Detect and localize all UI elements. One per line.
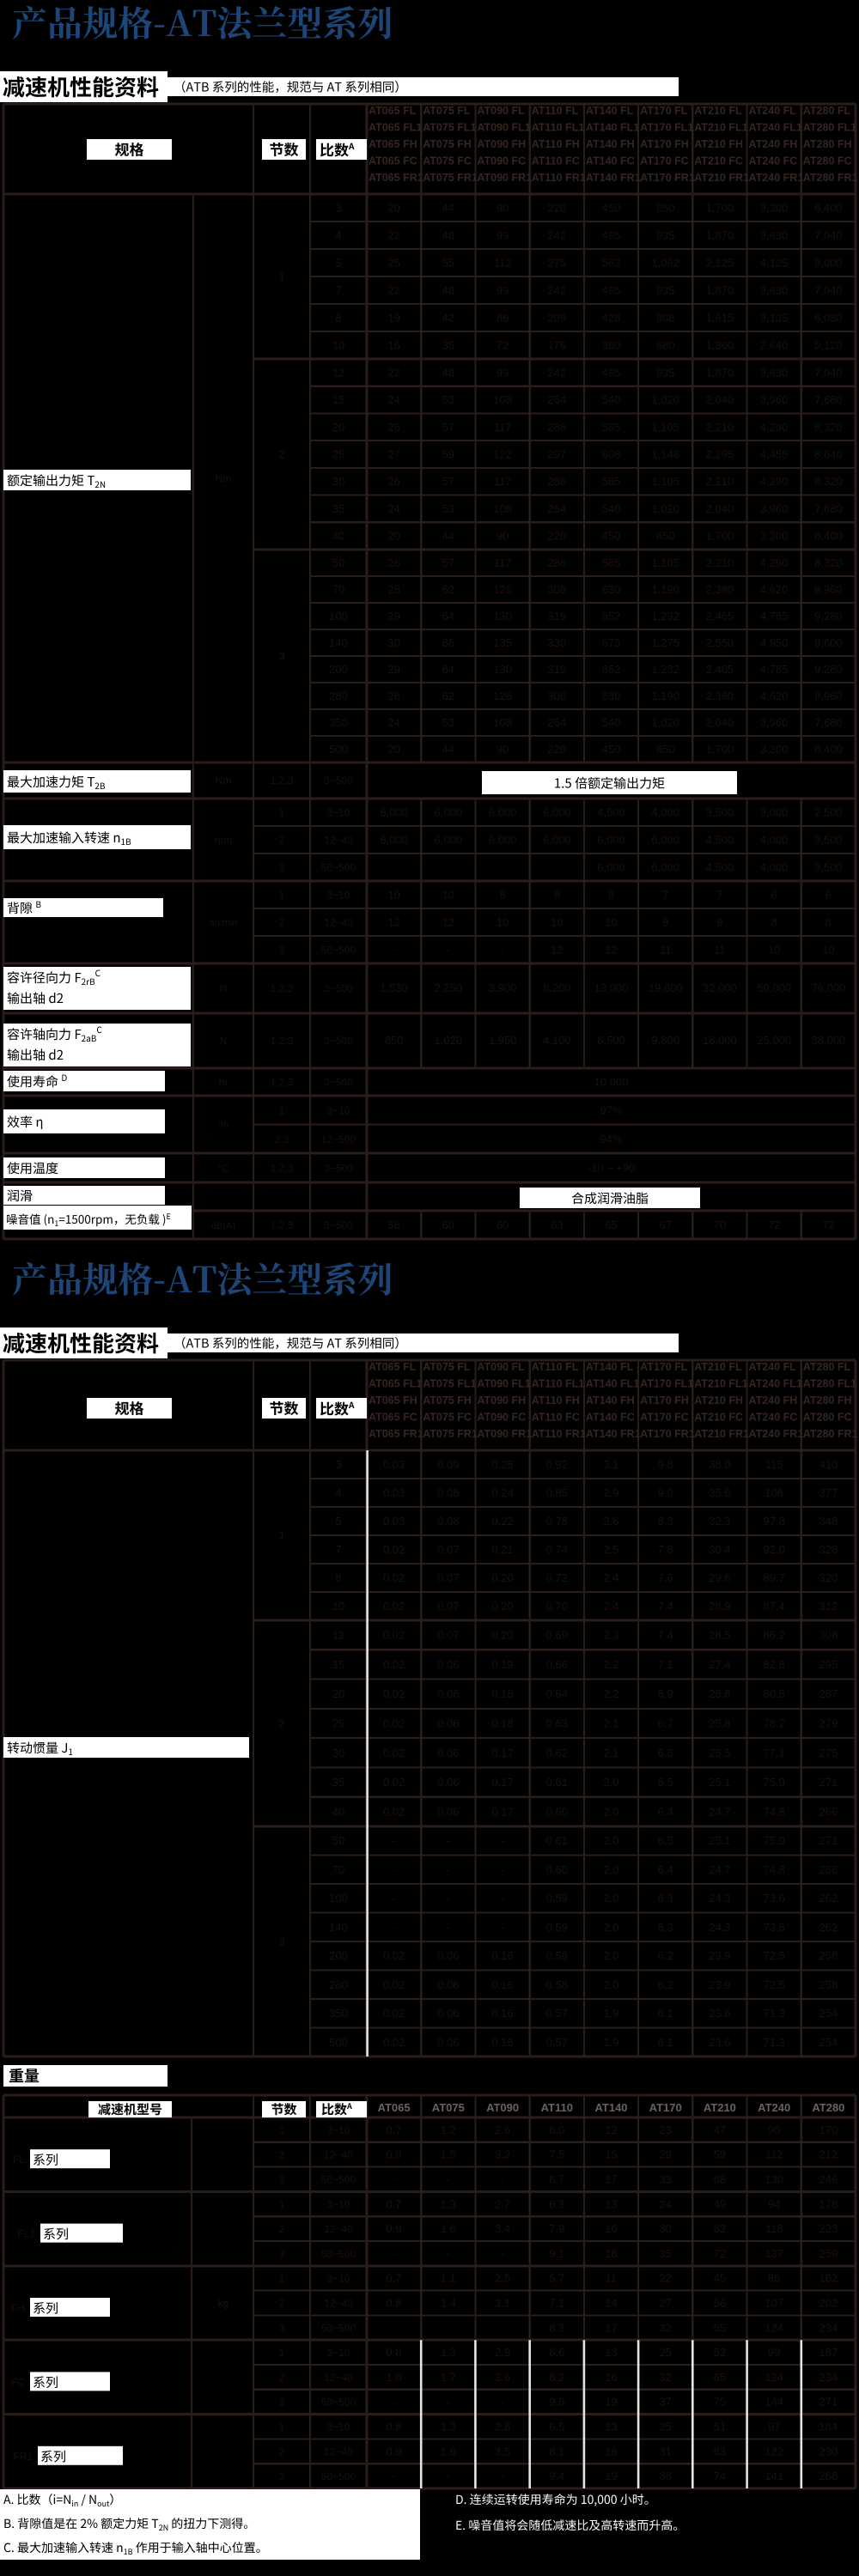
svg-text:AT075 FC: AT075 FC [423, 1412, 472, 1424]
svg-text:0.8: 0.8 [387, 2421, 402, 2433]
svg-text:0.59: 0.59 [546, 1892, 568, 1905]
svg-text:AT280 FL: AT280 FL [803, 105, 851, 117]
svg-text:170: 170 [819, 2123, 838, 2136]
svg-text:FL: FL [13, 2154, 25, 2166]
svg-text:74: 74 [714, 2470, 726, 2482]
svg-text:16: 16 [605, 2371, 617, 2384]
svg-text:9: 9 [716, 916, 722, 929]
svg-text:°C: °C [217, 1163, 229, 1175]
svg-text:1,615: 1,615 [706, 312, 734, 325]
svg-text:262: 262 [819, 1921, 838, 1934]
svg-text:AT090 FR1: AT090 FR1 [477, 1428, 532, 1440]
svg-text:1.1: 1.1 [441, 2272, 456, 2285]
svg-text:3~10: 3~10 [326, 2198, 350, 2210]
svg-text:24.3: 24.3 [709, 1921, 730, 1934]
svg-text:AT090 FC: AT090 FC [477, 155, 526, 167]
svg-text:275: 275 [819, 1747, 838, 1759]
svg-text:72.5: 72.5 [764, 1949, 785, 1962]
svg-text:7.6: 7.6 [658, 1571, 673, 1584]
svg-text:99: 99 [497, 229, 509, 242]
svg-text:27.4: 27.4 [709, 1658, 730, 1671]
svg-text:3.6: 3.6 [495, 2371, 510, 2384]
svg-text:0.03: 0.03 [383, 1486, 405, 1499]
svg-text:0.69: 0.69 [546, 1629, 568, 1642]
svg-text:6.4: 6.4 [658, 1805, 673, 1818]
svg-text:2.0: 2.0 [603, 1805, 618, 1818]
svg-text:0.70: 0.70 [546, 1600, 568, 1613]
svg-text:4,620: 4,620 [760, 690, 789, 702]
svg-text:1: 1 [279, 807, 285, 819]
svg-text:50~500: 50~500 [321, 2174, 356, 2186]
svg-text:3,300: 3,300 [760, 202, 789, 215]
svg-text:2,465: 2,465 [706, 663, 734, 676]
svg-text:0.08: 0.08 [437, 1486, 459, 1499]
svg-text:AT210 FH: AT210 FH [694, 1394, 743, 1406]
svg-text:1.6: 1.6 [441, 2222, 456, 2235]
svg-text:AT065 FC: AT065 FC [369, 155, 417, 167]
svg-text:0.03: 0.03 [383, 1458, 405, 1471]
svg-text:1.9: 1.9 [603, 2036, 618, 2049]
svg-text:1: 1 [279, 2273, 285, 2285]
svg-text:108: 108 [493, 502, 512, 515]
svg-text:212: 212 [819, 2148, 838, 2161]
svg-text:AT210 FC: AT210 FC [694, 155, 743, 167]
svg-text:AT210 FR1: AT210 FR1 [694, 172, 749, 184]
svg-text:6.5: 6.5 [658, 1776, 673, 1789]
svg-text:1,360: 1,360 [706, 339, 734, 352]
svg-text:2,040: 2,040 [706, 716, 734, 729]
svg-text:585: 585 [602, 475, 621, 488]
svg-text:2,380: 2,380 [706, 583, 734, 596]
svg-text:6.3: 6.3 [658, 1892, 673, 1905]
svg-text:62: 62 [714, 2222, 726, 2235]
svg-text:AT240 FH: AT240 FH [749, 1394, 798, 1406]
svg-text:162: 162 [819, 2272, 838, 2285]
svg-text:1,2,3: 1,2,3 [271, 1077, 294, 1089]
svg-text:12: 12 [332, 366, 344, 379]
svg-text:AT240 FL: AT240 FL [749, 105, 797, 117]
svg-text:280: 280 [329, 690, 348, 702]
svg-text:6.7: 6.7 [658, 1717, 673, 1730]
svg-text:28.9: 28.9 [709, 1600, 730, 1613]
svg-text:AT065 FC: AT065 FC [369, 1412, 417, 1424]
svg-text:4,455: 4,455 [760, 448, 789, 461]
svg-text:1.3: 1.3 [441, 2346, 456, 2359]
svg-text:35: 35 [442, 339, 454, 352]
svg-text:80.5: 80.5 [764, 1687, 785, 1700]
svg-text:0.02: 0.02 [383, 1629, 405, 1642]
svg-text:1,870: 1,870 [706, 229, 734, 242]
svg-text:57: 57 [442, 475, 454, 488]
svg-text:30: 30 [387, 636, 399, 649]
svg-text:234: 234 [819, 2371, 838, 2384]
svg-text:1,2,3: 1,2,3 [271, 1035, 294, 1047]
svg-text:500: 500 [329, 2036, 348, 2049]
svg-text:9,280: 9,280 [814, 663, 843, 676]
svg-text:0.02: 0.02 [383, 2007, 405, 2020]
svg-text:2,550: 2,550 [706, 636, 734, 649]
svg-text:72: 72 [714, 2247, 726, 2260]
svg-text:286: 286 [547, 556, 566, 569]
svg-text:0.61: 0.61 [546, 1834, 568, 1847]
svg-text:-: - [501, 1834, 504, 1847]
svg-text:184: 184 [819, 2421, 838, 2433]
svg-text:-: - [501, 1921, 504, 1934]
svg-text:1.9: 1.9 [603, 2007, 618, 2020]
svg-text:94: 94 [768, 2197, 780, 2210]
svg-text:3,960: 3,960 [760, 393, 789, 406]
svg-text:1,700: 1,700 [706, 202, 734, 215]
svg-text:7: 7 [716, 889, 722, 902]
svg-text:0.07: 0.07 [437, 1600, 459, 1613]
svg-text:AT110 FL1: AT110 FL1 [532, 1378, 585, 1390]
svg-text:360: 360 [602, 339, 621, 352]
svg-text:0.06: 0.06 [437, 1978, 459, 1991]
svg-text:2.7: 2.7 [495, 2197, 510, 2210]
svg-text:3~10: 3~10 [326, 1105, 350, 1117]
svg-text:7,040: 7,040 [814, 229, 843, 242]
svg-text:0.08: 0.08 [437, 1515, 459, 1528]
svg-text:92.0: 92.0 [764, 1543, 785, 1556]
svg-text:4,290: 4,290 [760, 475, 789, 488]
svg-text:650: 650 [385, 1034, 404, 1047]
svg-text:6,000: 6,000 [435, 806, 463, 819]
svg-text:AT240 FL1: AT240 FL1 [749, 122, 802, 134]
svg-text:9,600: 9,600 [814, 636, 843, 649]
svg-text:9,800: 9,800 [651, 1034, 679, 1047]
svg-text:0.02: 0.02 [383, 1978, 405, 1991]
svg-text:850: 850 [656, 202, 675, 215]
svg-text:9.4: 9.4 [549, 2470, 564, 2482]
svg-text:2.8: 2.8 [495, 2421, 510, 2433]
svg-text:23.9: 23.9 [709, 1978, 730, 1991]
svg-text:4,290: 4,290 [760, 556, 789, 569]
svg-text:44: 44 [442, 202, 454, 215]
svg-text:0.17: 0.17 [491, 1776, 513, 1789]
svg-text:348: 348 [819, 1515, 838, 1528]
svg-text:2,465: 2,465 [706, 610, 734, 623]
svg-text:2: 2 [279, 2149, 285, 2161]
svg-text:AT065 FL1: AT065 FL1 [369, 122, 422, 134]
svg-text:AT065: AT065 [378, 2101, 411, 2114]
svg-text:13: 13 [605, 2346, 617, 2359]
svg-text:2.1: 2.1 [603, 1717, 618, 1730]
svg-text:6: 6 [771, 889, 777, 902]
svg-text:6.6: 6.6 [549, 2346, 564, 2359]
svg-text:59: 59 [442, 448, 454, 461]
svg-text:90: 90 [497, 743, 509, 756]
svg-text:AT210 FC: AT210 FC [694, 1412, 743, 1424]
svg-text:8: 8 [335, 312, 341, 325]
svg-text:68: 68 [714, 2173, 726, 2186]
svg-text:2: 2 [279, 835, 285, 847]
svg-text:7,680: 7,680 [814, 502, 843, 515]
svg-text:Nm: Nm [216, 473, 232, 485]
svg-text:24.3: 24.3 [709, 1892, 730, 1905]
svg-text:2,125: 2,125 [706, 257, 734, 270]
svg-text:12~40: 12~40 [324, 917, 353, 929]
svg-text:29: 29 [387, 663, 399, 676]
svg-text:122: 122 [493, 448, 512, 461]
svg-text:2.0: 2.0 [603, 1921, 618, 1934]
svg-text:0.59: 0.59 [546, 1921, 568, 1934]
svg-text:5.7: 5.7 [549, 2272, 564, 2285]
svg-text:6.6: 6.6 [658, 1747, 673, 1759]
svg-text:12: 12 [605, 944, 617, 957]
svg-text:AT210: AT210 [704, 2101, 736, 2114]
svg-text:AT240: AT240 [758, 2101, 790, 2114]
svg-text:26: 26 [387, 475, 399, 488]
svg-text:137: 137 [765, 2247, 783, 2260]
svg-text:57: 57 [442, 421, 454, 434]
svg-text:AT210 FR1: AT210 FR1 [694, 1428, 749, 1440]
svg-text:45: 45 [714, 2272, 726, 2285]
svg-text:1,870: 1,870 [706, 284, 734, 297]
svg-text:AT280 FL1: AT280 FL1 [803, 1378, 856, 1390]
svg-text:23.9: 23.9 [709, 1949, 730, 1962]
svg-text:202: 202 [819, 2297, 838, 2310]
svg-text:-: - [392, 2173, 395, 2186]
svg-text:1: 1 [279, 2347, 285, 2359]
svg-text:-: - [447, 1921, 450, 1934]
svg-text:246: 246 [819, 2173, 838, 2186]
svg-text:3,300: 3,300 [760, 530, 789, 543]
svg-text:24.7: 24.7 [709, 1863, 730, 1876]
svg-text:1: 1 [279, 2421, 285, 2433]
svg-text:74.8: 74.8 [764, 1805, 785, 1818]
svg-text:97%: 97% [600, 1104, 622, 1117]
svg-text:50~500: 50~500 [321, 2322, 356, 2334]
svg-text:-: - [392, 1834, 395, 1847]
svg-text:AT075 FH: AT075 FH [423, 1394, 472, 1406]
svg-text:262: 262 [819, 1892, 838, 1905]
svg-text:8,200: 8,200 [543, 981, 571, 994]
svg-text:279: 279 [819, 1717, 838, 1730]
svg-text:35.0: 35.0 [709, 1486, 730, 1499]
svg-text:AT170 FH: AT170 FH [640, 138, 689, 150]
svg-text:4,500: 4,500 [706, 861, 734, 874]
svg-text:47: 47 [714, 2123, 726, 2136]
svg-text:0.20: 0.20 [491, 1571, 513, 1584]
svg-text:-: - [501, 1863, 504, 1876]
svg-text:6.3: 6.3 [549, 2197, 564, 2210]
svg-text:2.0: 2.0 [603, 1776, 618, 1789]
svg-text:9.0: 9.0 [658, 1486, 673, 1499]
svg-text:26: 26 [387, 421, 399, 434]
svg-text:AT280 FR1: AT280 FR1 [803, 172, 858, 184]
svg-text:99: 99 [497, 284, 509, 297]
svg-text:4,290: 4,290 [760, 421, 789, 434]
svg-text:0.16: 0.16 [491, 2036, 513, 2049]
svg-text:6.1: 6.1 [658, 2036, 673, 2049]
svg-text:25.8: 25.8 [709, 1717, 730, 1730]
svg-text:48: 48 [442, 229, 454, 242]
svg-text:271: 271 [819, 1834, 838, 1847]
svg-text:3,630: 3,630 [760, 366, 789, 379]
svg-text:0.06: 0.06 [437, 1687, 459, 1700]
svg-text:2,040: 2,040 [706, 393, 734, 406]
svg-text:308: 308 [547, 583, 566, 596]
svg-text:AT240 FR1: AT240 FR1 [749, 172, 804, 184]
svg-text:178: 178 [819, 2197, 838, 2210]
svg-text:1: 1 [278, 270, 284, 283]
svg-text:AT240 FL1: AT240 FL1 [749, 1378, 802, 1390]
svg-text:3,960: 3,960 [760, 502, 789, 515]
svg-text:0.62: 0.62 [546, 1747, 568, 1759]
svg-text:850: 850 [656, 530, 675, 543]
svg-text:1,275: 1,275 [651, 636, 679, 649]
svg-text:12~40: 12~40 [324, 2445, 353, 2458]
svg-text:200: 200 [329, 1949, 348, 1962]
svg-text:108: 108 [493, 393, 512, 406]
svg-text:0.06: 0.06 [437, 1658, 459, 1671]
svg-text:-: - [392, 1892, 395, 1905]
svg-text:66: 66 [442, 636, 454, 649]
svg-text:28.5: 28.5 [709, 1629, 730, 1642]
svg-text:6.5: 6.5 [658, 1834, 673, 1847]
svg-text:AT140 FL: AT140 FL [586, 1361, 634, 1373]
svg-text:20: 20 [387, 202, 399, 215]
svg-text:3~500: 3~500 [324, 1219, 353, 1231]
svg-text:hr: hr [219, 1077, 228, 1089]
svg-text:808: 808 [656, 312, 675, 325]
svg-text:-: - [501, 944, 504, 957]
svg-text:64: 64 [442, 610, 454, 623]
svg-text:N: N [220, 982, 228, 994]
svg-text:17: 17 [605, 2321, 617, 2334]
svg-text:12: 12 [551, 944, 563, 957]
svg-text:AT240 FC: AT240 FC [749, 1412, 798, 1424]
svg-text:7,040: 7,040 [814, 366, 843, 379]
svg-text:1,105: 1,105 [651, 475, 679, 488]
svg-text:99: 99 [497, 366, 509, 379]
svg-text:25: 25 [659, 2421, 671, 2433]
svg-text:328: 328 [819, 1543, 838, 1556]
svg-text:3: 3 [335, 1458, 341, 1471]
svg-text:AT170 FL1: AT170 FL1 [640, 122, 693, 134]
svg-text:0.07: 0.07 [437, 1543, 459, 1556]
svg-text:77.1: 77.1 [764, 1747, 785, 1759]
svg-text:935: 935 [656, 366, 675, 379]
svg-text:130: 130 [493, 610, 512, 623]
svg-text:19: 19 [387, 312, 399, 325]
svg-text:50~500: 50~500 [321, 2397, 356, 2409]
svg-text:-: - [447, 1834, 450, 1847]
svg-text:312: 312 [819, 1600, 838, 1613]
svg-text:0.20: 0.20 [491, 1600, 513, 1613]
svg-text:50: 50 [332, 1834, 344, 1847]
svg-text:115: 115 [765, 1458, 783, 1471]
svg-text:266: 266 [819, 1805, 838, 1818]
svg-text:0.06: 0.06 [437, 1805, 459, 1818]
svg-text:2.5: 2.5 [495, 2272, 510, 2285]
svg-text:AT075 FL1: AT075 FL1 [423, 1378, 476, 1390]
svg-text:9,280: 9,280 [814, 610, 843, 623]
svg-text:377: 377 [819, 1486, 838, 1499]
svg-text:AT170: AT170 [649, 2101, 682, 2114]
svg-text:3: 3 [279, 2322, 285, 2334]
svg-text:0.02: 0.02 [383, 1949, 405, 1962]
svg-text:-: - [392, 2247, 395, 2260]
svg-text:2,210: 2,210 [706, 421, 734, 434]
svg-text:AT280 FC: AT280 FC [803, 155, 852, 167]
svg-text:0.09: 0.09 [437, 1458, 459, 1471]
svg-text:8.3: 8.3 [549, 2321, 564, 2334]
svg-text:AT075 FR1: AT075 FR1 [423, 1428, 478, 1440]
svg-text:2.0: 2.0 [603, 1892, 618, 1905]
svg-text:1,870: 1,870 [706, 366, 734, 379]
svg-text:AT170 FL1: AT170 FL1 [640, 1378, 693, 1390]
svg-text:12: 12 [387, 916, 399, 929]
svg-text:42: 42 [442, 312, 454, 325]
svg-text:100: 100 [329, 1892, 348, 1905]
svg-text:0.8: 0.8 [387, 2346, 402, 2359]
svg-text:AT090 FL1: AT090 FL1 [477, 1378, 530, 1390]
svg-text:86: 86 [497, 312, 509, 325]
svg-text:3,960: 3,960 [760, 716, 789, 729]
svg-text:118: 118 [765, 2222, 783, 2235]
svg-text:3~10: 3~10 [326, 890, 350, 902]
svg-text:38,000: 38,000 [812, 1034, 846, 1047]
svg-text:AT280 FH: AT280 FH [803, 1394, 852, 1406]
svg-text:2.9: 2.9 [495, 2346, 510, 2359]
svg-text:350: 350 [329, 2007, 348, 2020]
svg-text:3: 3 [278, 650, 284, 663]
svg-text:73.6: 73.6 [764, 1892, 785, 1905]
svg-text:8,640: 8,640 [814, 448, 843, 461]
svg-text:90: 90 [497, 202, 509, 215]
svg-text:11: 11 [660, 944, 672, 957]
svg-text:AT090 FR1: AT090 FR1 [477, 172, 532, 184]
svg-text:12~40: 12~40 [324, 2372, 353, 2384]
svg-text:5: 5 [335, 257, 341, 270]
svg-text:2: 2 [279, 2445, 285, 2458]
svg-text:17: 17 [605, 2173, 617, 2186]
svg-text:2.2: 2.2 [603, 1658, 618, 1671]
svg-text:AT240 FC: AT240 FC [749, 155, 798, 167]
svg-text:15: 15 [605, 2148, 617, 2161]
svg-text:27: 27 [659, 2297, 671, 2310]
svg-text:4,620: 4,620 [760, 583, 789, 596]
svg-text:135: 135 [493, 636, 512, 649]
svg-text:7,680: 7,680 [814, 716, 843, 729]
svg-text:67: 67 [659, 1218, 671, 1231]
svg-text:12~40: 12~40 [324, 2149, 353, 2161]
svg-text:-10 ~ +90: -10 ~ +90 [588, 1162, 636, 1175]
svg-text:57: 57 [442, 556, 454, 569]
svg-text:70: 70 [332, 583, 344, 596]
svg-text:6,400: 6,400 [814, 743, 843, 756]
svg-text:0.60: 0.60 [546, 1805, 568, 1818]
svg-text:1,105: 1,105 [651, 556, 679, 569]
svg-text:FH: FH [11, 2302, 25, 2314]
svg-text:87.4: 87.4 [764, 1600, 785, 1613]
svg-text:75.9: 75.9 [764, 1776, 785, 1789]
svg-text:28: 28 [387, 690, 399, 702]
svg-text:65: 65 [714, 2371, 726, 2384]
svg-text:100: 100 [329, 610, 348, 623]
svg-text:330: 330 [547, 636, 566, 649]
svg-text:6,000: 6,000 [380, 834, 408, 847]
svg-text:8: 8 [499, 889, 505, 902]
svg-text:AT210 FL: AT210 FL [694, 1361, 742, 1373]
svg-text:5: 5 [335, 1515, 341, 1528]
svg-text:585: 585 [602, 556, 621, 569]
svg-text:40: 40 [332, 1805, 344, 1818]
svg-text:3~10: 3~10 [326, 2421, 350, 2433]
svg-text:428: 428 [602, 312, 621, 325]
svg-text:52: 52 [714, 2346, 726, 2359]
